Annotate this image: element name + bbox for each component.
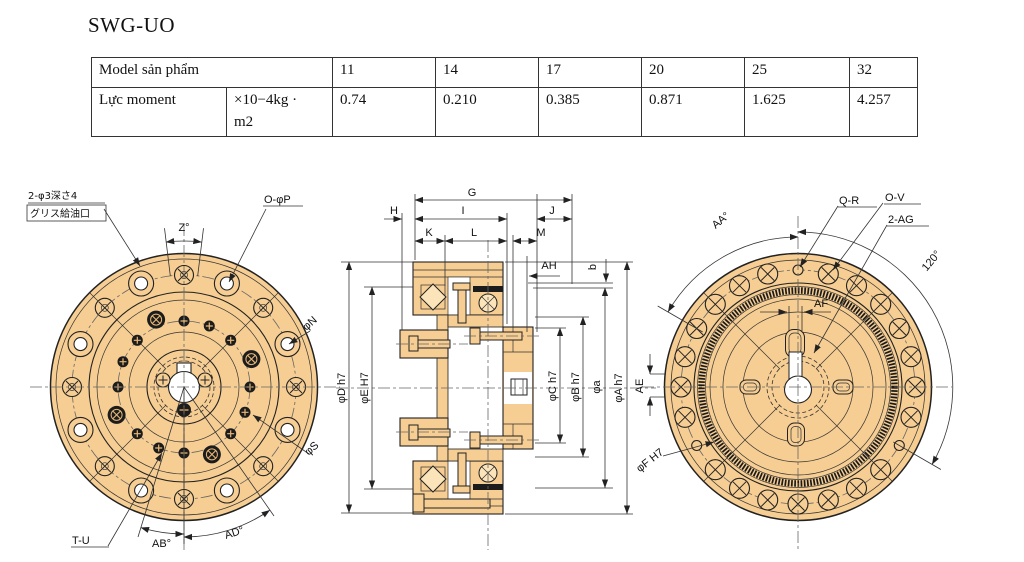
label-angle-ab: AB°: [152, 538, 171, 550]
front-view: 2-φ3深さ4 グリス給油口 O-φP Z° φN φS T-U AB° AD°: [27, 190, 340, 550]
label-2-ag: 2-AG: [888, 214, 914, 226]
label-dim-h: H: [390, 205, 398, 217]
label-grease-note-2: グリス給油口: [30, 207, 90, 220]
label-dim-b: b: [587, 264, 599, 270]
label-angle-120: 120°: [920, 248, 944, 273]
label-dim-ae: AE: [634, 379, 646, 394]
label-angle-aa: AA°: [710, 210, 732, 231]
technical-drawing: 2-φ3深さ4 グリス給油口 O-φP Z° φN φS T-U AB° AD°: [0, 0, 1024, 562]
label-dia-d: φD h7: [336, 373, 348, 403]
label-angle-ad: AD°: [223, 524, 245, 541]
label-dim-g: G: [468, 187, 477, 199]
back-view: AA° Q-R O-V 2-AG 120° AF φF H7: [634, 192, 953, 550]
label-dim-m: M: [536, 227, 545, 239]
label-dim-j: J: [549, 205, 555, 217]
label-q-r: Q-R: [839, 195, 859, 207]
label-dim-l: L: [471, 227, 477, 239]
label-o-v: O-V: [885, 192, 905, 204]
label-dim-k: K: [425, 227, 433, 239]
datasheet-page: { "page": { "title": "SWG-UO" }, "table"…: [0, 0, 1024, 562]
label-dia-f: φF H7: [634, 446, 666, 475]
label-dia-b: φB h7: [570, 372, 582, 402]
label-dim-af: AF: [814, 298, 828, 310]
label-dim-ah: AH: [541, 260, 556, 272]
label-dia-e: φE H7: [359, 372, 371, 404]
label-grease-note-1: 2-φ3深さ4: [28, 190, 77, 202]
label-dia-a-small: φa: [591, 380, 603, 394]
label-dim-i: I: [461, 205, 464, 217]
label-t-u: T-U: [72, 535, 90, 547]
label-dia-c: φC h7: [547, 371, 559, 401]
label-dia-a: φA h7: [613, 373, 625, 402]
label-o-phi-p: O-φP: [264, 194, 291, 206]
label-angle-z: Z°: [178, 222, 189, 234]
